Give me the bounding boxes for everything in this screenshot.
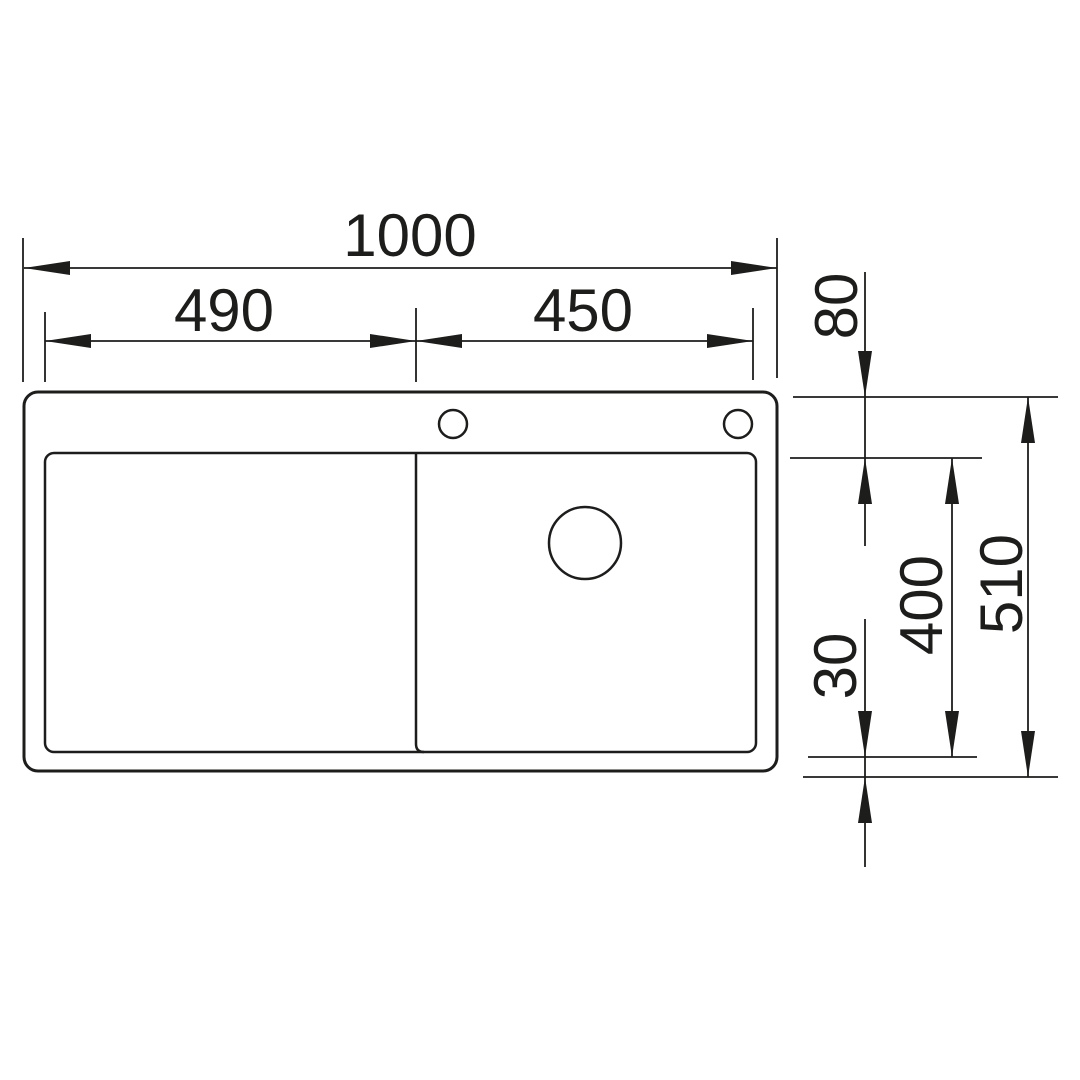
dim-left-section: 490 <box>45 277 416 382</box>
arrowhead-up <box>858 777 872 823</box>
technical-drawing-canvas: 1000 490 450 80 30 <box>0 0 1080 1080</box>
arrowhead-up <box>858 458 872 504</box>
arrowhead-left <box>45 334 91 348</box>
bowl-area-outline <box>45 453 756 752</box>
arrowhead-right <box>370 334 416 348</box>
dim-bottom-rim: 30 <box>802 619 872 867</box>
drain-hole <box>549 507 621 579</box>
dimension-label: 510 <box>968 534 1035 634</box>
dim-top-rim: 80 <box>803 272 872 546</box>
dim-overall-depth: 510 <box>968 397 1035 777</box>
arrowhead-right <box>707 334 753 348</box>
dimension-label: 450 <box>533 277 633 344</box>
arrowhead-up <box>945 458 959 504</box>
dimension-label: 400 <box>888 555 955 655</box>
dim-bowl-depth: 400 <box>888 458 959 757</box>
drainboard-bowl-divider <box>416 453 424 752</box>
sink-plan-view <box>24 392 777 771</box>
sink-dimension-drawing: 1000 490 450 80 30 <box>0 0 1080 1080</box>
arrowhead-right <box>731 261 777 275</box>
arrowhead-up <box>1021 397 1035 443</box>
arrowhead-down <box>858 351 872 397</box>
sink-outline <box>24 392 777 771</box>
tap-hole-right <box>724 410 752 438</box>
arrowhead-down <box>858 711 872 757</box>
arrowhead-left <box>24 261 70 275</box>
dim-right-section: 450 <box>416 277 753 380</box>
dimension-label: 80 <box>803 273 870 340</box>
dimension-label: 490 <box>174 277 274 344</box>
dimension-label: 1000 <box>343 202 476 269</box>
arrowhead-down <box>1021 731 1035 777</box>
dim-overall-width: 1000 <box>23 202 777 382</box>
dimension-label: 30 <box>802 633 869 700</box>
arrowhead-down <box>945 711 959 757</box>
arrowhead-left <box>416 334 462 348</box>
tap-hole-left <box>439 410 467 438</box>
